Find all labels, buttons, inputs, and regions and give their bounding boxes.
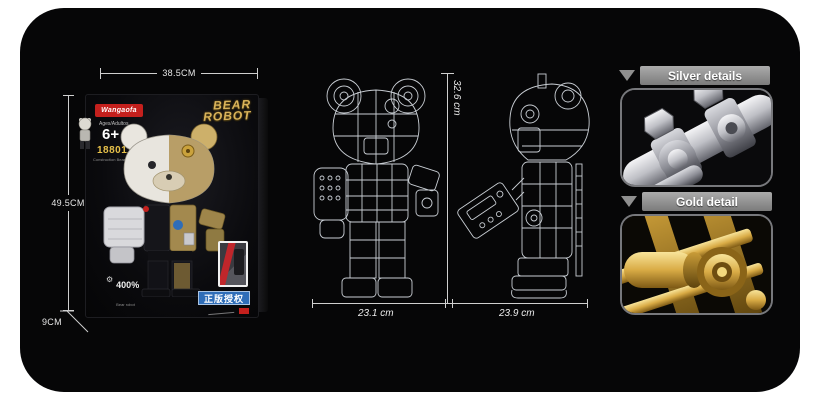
product-box: Wangaofa Ages/Adultos 6+ 188011 Construc… xyxy=(85,94,271,320)
inset-card-figure xyxy=(234,249,244,275)
box-width-dimension: 38.5CM xyxy=(100,67,258,79)
banner-tag xyxy=(239,308,249,314)
box-title: BEAR ROBOT xyxy=(202,99,251,123)
scale-caption: Bear robot xyxy=(116,302,135,307)
mini-bear-figure xyxy=(76,116,94,150)
gold-detail-image xyxy=(620,214,773,315)
brand-logo: Wangaofa xyxy=(95,104,143,117)
figure-height-dimension-line xyxy=(447,73,448,304)
front-width-dimension xyxy=(312,299,446,308)
side-width-dimension xyxy=(452,299,588,308)
dimension-line xyxy=(68,96,69,195)
blueprint-side-view xyxy=(452,72,600,303)
silver-detail-label: Silver details xyxy=(640,66,770,85)
down-arrow-icon xyxy=(619,70,635,81)
scale-text: 400% Bear robot xyxy=(116,275,139,311)
blueprint-front-view xyxy=(308,72,448,303)
signature-mark xyxy=(208,306,235,315)
dimension-line xyxy=(101,73,157,74)
silver-detail-header: Silver details xyxy=(619,66,770,85)
gold-detail-header: Gold detail xyxy=(621,192,772,211)
box-width-label: 38.5CM xyxy=(162,68,195,78)
box-height-label: 49.5CM xyxy=(51,198,84,208)
dimension-line xyxy=(453,303,587,304)
dimension-tick xyxy=(257,68,258,79)
box-depth-label: 9CM xyxy=(42,317,62,327)
gold-detail-label: Gold detail xyxy=(642,192,772,211)
silver-parts-photo xyxy=(622,90,771,185)
dimension-line xyxy=(201,73,257,74)
box-front: Wangaofa Ages/Adultos 6+ 188011 Construc… xyxy=(85,94,259,318)
dimension-tick xyxy=(441,73,454,74)
inset-card-art xyxy=(220,243,246,285)
gear-icon: ⚙ xyxy=(106,275,113,285)
dimension-line xyxy=(313,303,445,304)
dimension-tick xyxy=(587,299,588,308)
license-banner: 正版授权 xyxy=(198,291,250,305)
front-width-label: 23.1 cm xyxy=(358,308,394,319)
gold-parts-photo xyxy=(622,216,771,313)
side-width-label: 23.9 cm xyxy=(499,308,535,319)
inset-card xyxy=(218,241,248,287)
silver-detail-image xyxy=(620,88,773,187)
dimension-tick xyxy=(445,299,446,308)
dimension-line xyxy=(68,211,69,310)
product-showcase: 38.5CM 49.5CM 9CM Wangaofa Ages/Adultos … xyxy=(0,0,820,400)
scale-label: 400% xyxy=(116,280,139,290)
figure-height-label: 32.6 cm xyxy=(451,80,462,116)
scale-badge: ⚙ 400% Bear robot xyxy=(106,275,139,311)
down-arrow-icon xyxy=(621,196,637,207)
